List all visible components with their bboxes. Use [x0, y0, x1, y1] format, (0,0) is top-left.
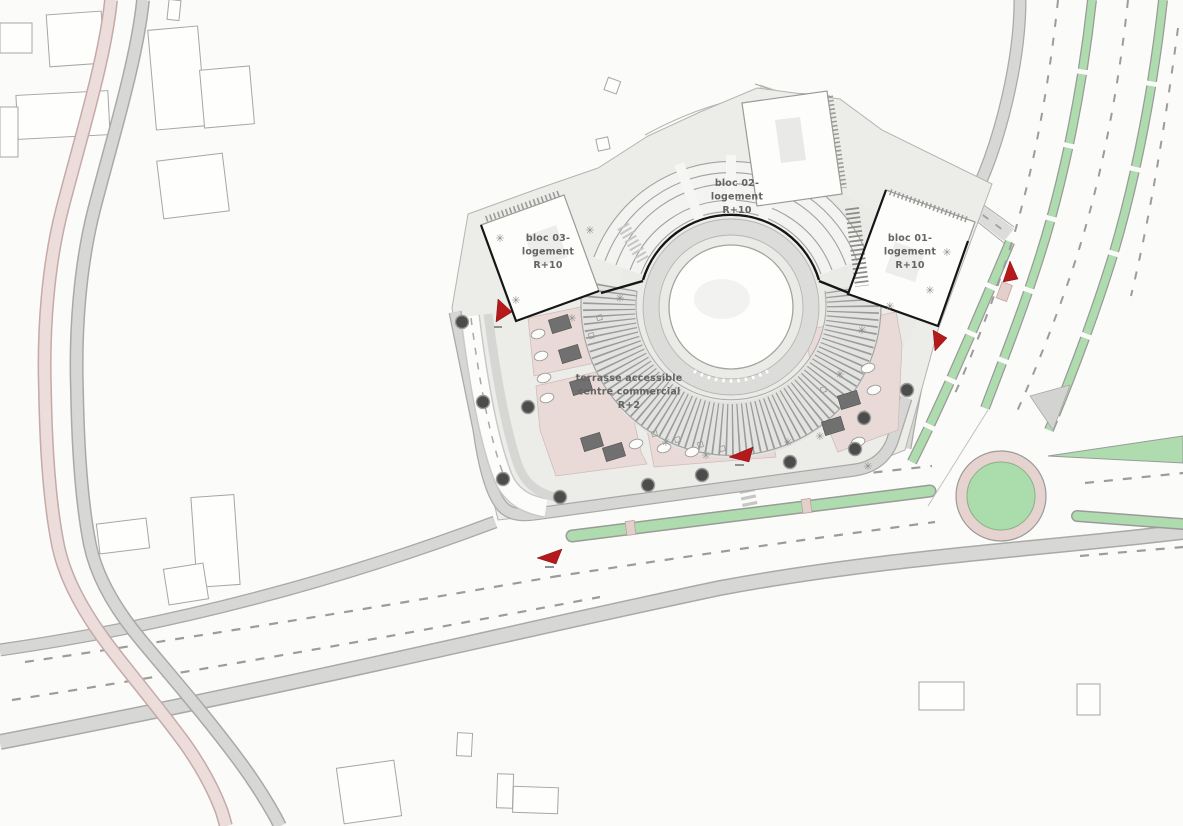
background-building [919, 682, 964, 710]
traffic-island [1030, 385, 1070, 430]
terrasse-label-line2: centre commercial [578, 387, 681, 398]
green-median [1048, 436, 1183, 463]
tree-icon [522, 401, 535, 414]
background-building [456, 733, 472, 757]
green-median [985, 0, 1092, 408]
background-building [200, 66, 255, 128]
shrub-icon: ✳ [942, 246, 951, 259]
tree-icon [497, 473, 510, 486]
bloc-03-label-line2: logement [522, 247, 575, 258]
bloc-01-label-line1: bloc 01- [888, 233, 932, 244]
bloc-03-label-line3: R+10 [533, 260, 562, 271]
annotation-mark [545, 566, 554, 568]
bloc-01-label-line3: R+10 [895, 260, 924, 271]
background-building [496, 774, 513, 809]
annotation-mark [735, 464, 744, 466]
entrance-arrow-icon [933, 330, 947, 351]
shrub-icon: ✳ [661, 436, 670, 449]
background-building [1077, 684, 1100, 715]
shrub-icon: ✳ [783, 436, 792, 449]
bloc-02-label-line2: logement [711, 192, 764, 203]
shrub-icon: ✳ [495, 232, 504, 245]
site-plan-drawing: ✳ ✳ ✳ ✳ ✳ ✳ ✳ ✳ ✳ ✳ ✳ ✳ ✳ ✳ ✳ ✳ [0, 0, 1183, 826]
median-crossing-break [801, 498, 812, 513]
background-building [167, 0, 181, 21]
bloc-02-label-line3: R+10 [722, 205, 751, 216]
roundabout-green-center [967, 462, 1035, 530]
green-median [1049, 0, 1163, 430]
terrasse-label-line3: R+2 [618, 400, 641, 411]
annotation-mark [494, 326, 502, 328]
tree-icon [456, 316, 469, 329]
tree-icon [696, 469, 709, 482]
background-building [513, 786, 559, 814]
background-building [148, 26, 207, 130]
terrasse-label-line1: terrasse accessible [576, 373, 683, 384]
tree-icon [849, 443, 862, 456]
background-building [0, 107, 18, 157]
tree-icon [858, 412, 871, 425]
median-border [985, 0, 1092, 408]
shrub-icon: ✳ [701, 449, 710, 462]
shrub-icon: ✳ [835, 368, 844, 381]
shrub-icon: ✳ [857, 324, 866, 337]
shrub-icon: ✳ [863, 460, 872, 473]
roundabout [956, 451, 1046, 541]
background-building [163, 563, 208, 605]
site-plan-canvas: ✳ ✳ ✳ ✳ ✳ ✳ ✳ ✳ ✳ ✳ ✳ ✳ ✳ ✳ ✳ ✳ [0, 0, 1183, 826]
median-border [1049, 0, 1163, 430]
plaza-detail [694, 279, 750, 319]
tree-icon [554, 491, 567, 504]
utility-box [596, 137, 610, 151]
tree-icon [901, 384, 914, 397]
shrub-icon: ✳ [815, 430, 824, 443]
shrub-icon: ✳ [925, 284, 934, 297]
boulevard-bottom-sidewalk [0, 532, 1183, 742]
shrub-icon: ✳ [567, 312, 576, 325]
background-building [336, 760, 401, 824]
median-crossing-break [625, 520, 636, 535]
bloc-03-label-line1: bloc 03- [526, 233, 570, 244]
shrub-icon: ✳ [885, 300, 894, 313]
bloc-02-label-line1: bloc 02- [715, 178, 759, 189]
shrub-icon: ✳ [511, 294, 520, 307]
background-building [157, 153, 230, 219]
tree-icon [477, 396, 490, 409]
utility-box [604, 77, 621, 94]
lane-dash-line [1085, 473, 1183, 483]
tree-icon [784, 456, 797, 469]
tree-icon [642, 479, 655, 492]
entrance-arrow-icon [537, 549, 562, 564]
background-building [0, 23, 32, 53]
shrub-icon: ✳ [585, 224, 594, 237]
bloc-01-label-line2: logement [884, 247, 937, 258]
background-building [96, 518, 149, 554]
lane-dash-line [1014, 0, 1128, 418]
shrub-icon: ✳ [615, 292, 624, 305]
